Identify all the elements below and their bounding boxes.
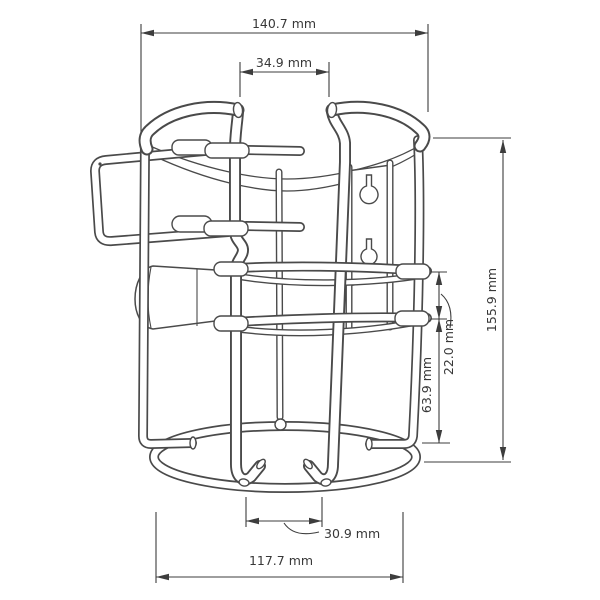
- right-foot-cap: [366, 438, 372, 450]
- dim-label-band-spacing: 22.0 mm: [441, 319, 456, 375]
- bottom-hinge-sleeve-right: [204, 221, 248, 236]
- dimension-base-width: 117.7 mm: [156, 512, 403, 583]
- lower-band-right-sleeve: [395, 311, 429, 326]
- left-foot-cap: [190, 437, 196, 449]
- dimension-top-opening: 34.9 mm: [240, 55, 329, 97]
- upper-band-right-sleeve: [396, 264, 430, 279]
- drawing-page: 140.7 mm 34.9 mm 155.9 mm 22.0 mm 63.9 m…: [0, 0, 600, 600]
- dim-label-band-to-base: 63.9 mm: [419, 357, 434, 413]
- dimension-overall-height: 155.9 mm: [424, 138, 511, 462]
- technical-drawing-canvas: 140.7 mm 34.9 mm 155.9 mm 22.0 mm 63.9 m…: [0, 0, 600, 600]
- hanger-loop: [275, 419, 286, 430]
- dimension-front-opening: 30.9 mm: [246, 497, 380, 541]
- wire-holder-drawing: [95, 102, 430, 488]
- lower-band-left-sleeve: [214, 316, 248, 331]
- dim-label-overall-height: 155.9 mm: [484, 268, 499, 332]
- upper-band-left-sleeve: [214, 262, 248, 276]
- dim-label-base-width: 117.7 mm: [249, 553, 313, 568]
- center-hanger-wire: [279, 172, 280, 417]
- dim-label-overall-width: 140.7 mm: [252, 16, 316, 31]
- bail-weld-dot: [98, 162, 101, 165]
- dimension-band-spacing: 22.0 mm: [431, 272, 456, 375]
- latch-arm-upper: [246, 150, 300, 151]
- latch-arm-lower: [246, 226, 300, 227]
- dim-label-front-opening: 30.9 mm: [324, 526, 380, 541]
- top-hinge-sleeve-right: [205, 143, 249, 158]
- bottom-ring: [154, 426, 416, 488]
- dim-label-top-opening: 34.9 mm: [256, 55, 312, 70]
